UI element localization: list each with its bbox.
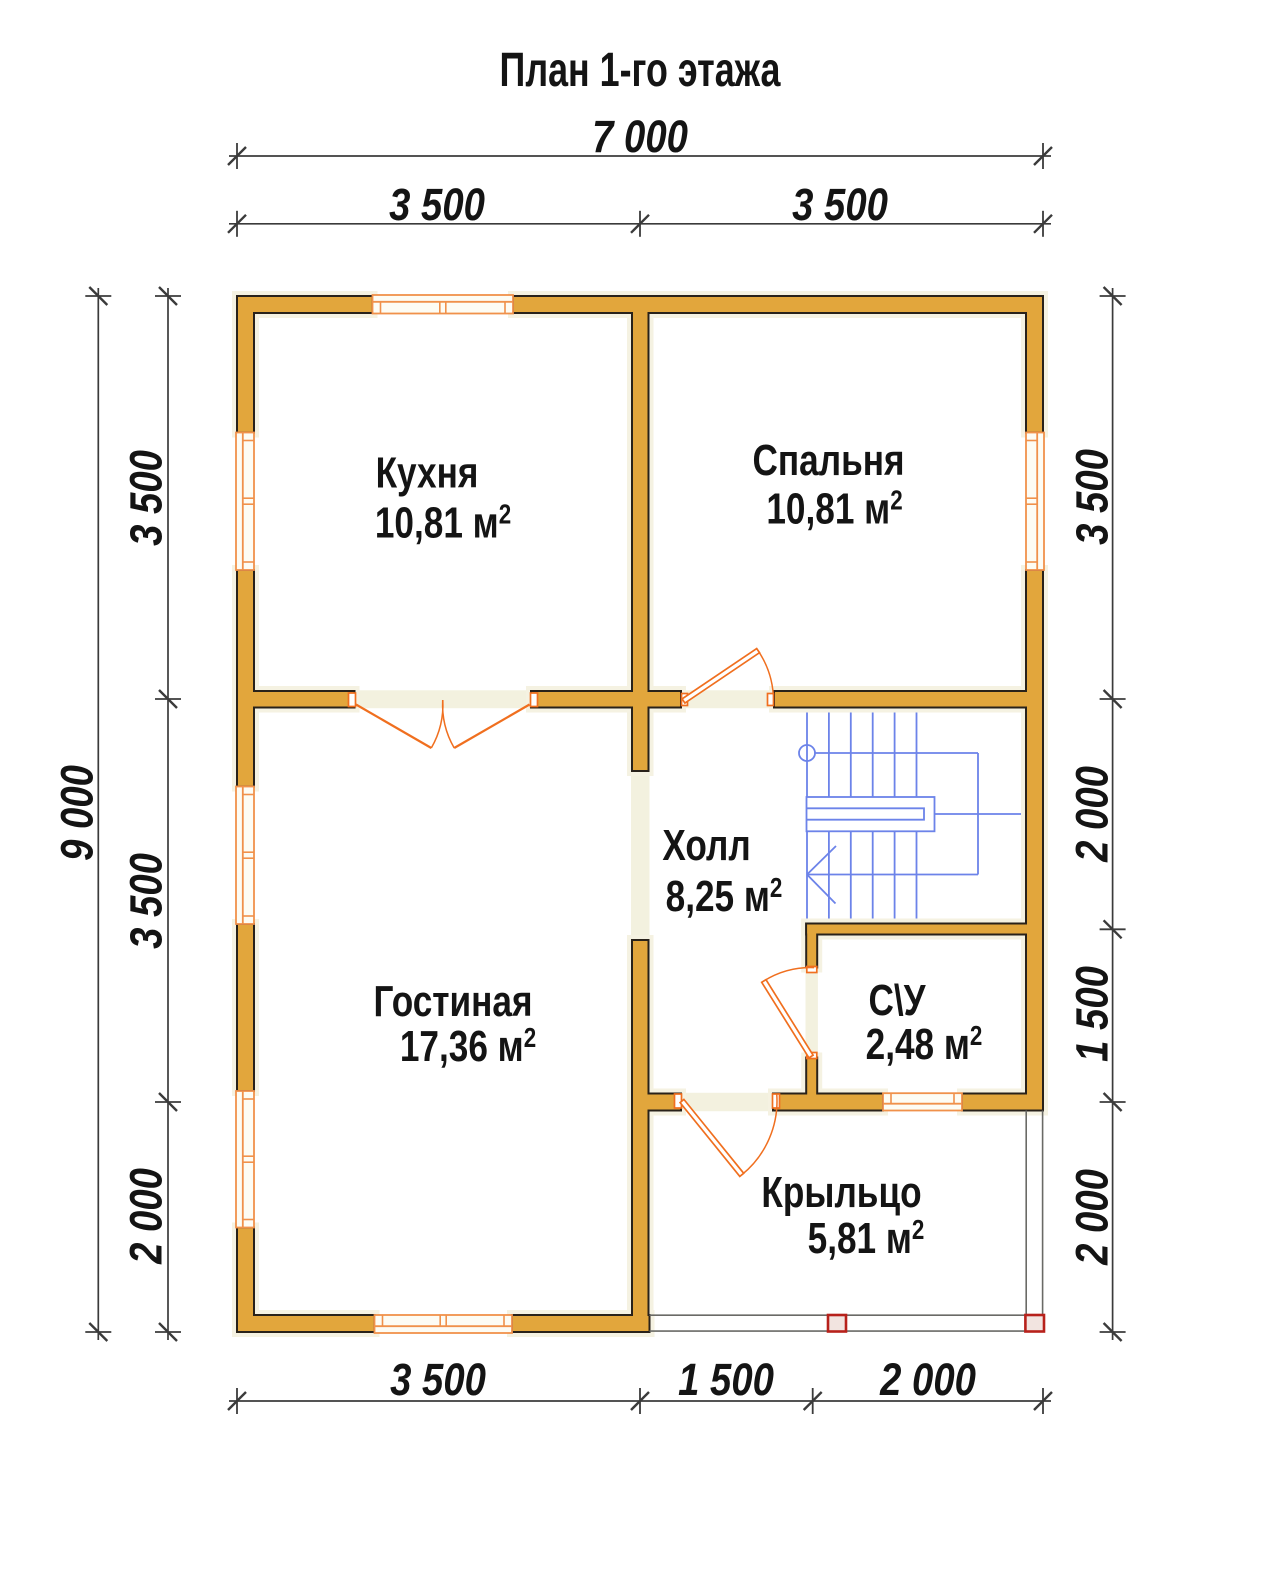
svg-text:2 000: 2 000 xyxy=(879,1354,976,1405)
svg-text:1 500: 1 500 xyxy=(678,1354,774,1405)
svg-text:5,81 м2: 5,81 м2 xyxy=(808,1214,925,1263)
svg-text:2,48 м2: 2,48 м2 xyxy=(866,1020,983,1069)
svg-text:План 1-го этажа: План 1-го этажа xyxy=(500,43,781,96)
svg-text:17,36 м2: 17,36 м2 xyxy=(400,1022,536,1071)
svg-text:1 500: 1 500 xyxy=(1066,966,1117,1062)
svg-text:3 500: 3 500 xyxy=(120,450,171,546)
svg-text:8,25 м2: 8,25 м2 xyxy=(666,872,783,921)
svg-text:С\У: С\У xyxy=(868,976,926,1025)
svg-text:Холл: Холл xyxy=(662,821,750,870)
svg-text:7 000: 7 000 xyxy=(592,111,688,162)
svg-text:3 500: 3 500 xyxy=(1066,449,1117,545)
svg-text:Кухня: Кухня xyxy=(376,449,479,498)
svg-text:Крыльцо: Крыльцо xyxy=(761,1168,921,1217)
svg-text:2 000: 2 000 xyxy=(120,1168,171,1265)
svg-text:Спальня: Спальня xyxy=(752,436,904,485)
svg-text:3 500: 3 500 xyxy=(389,179,485,230)
svg-text:10,81 м2: 10,81 м2 xyxy=(766,485,902,534)
svg-text:10,81 м2: 10,81 м2 xyxy=(375,499,511,548)
svg-text:Гостиная: Гостиная xyxy=(373,977,532,1026)
svg-text:2 000: 2 000 xyxy=(1066,1169,1117,1266)
svg-text:3 500: 3 500 xyxy=(792,179,888,230)
svg-text:3 500: 3 500 xyxy=(120,853,171,949)
svg-text:3 500: 3 500 xyxy=(390,1354,486,1405)
svg-text:9 000: 9 000 xyxy=(51,765,102,861)
svg-text:2 000: 2 000 xyxy=(1066,766,1117,863)
